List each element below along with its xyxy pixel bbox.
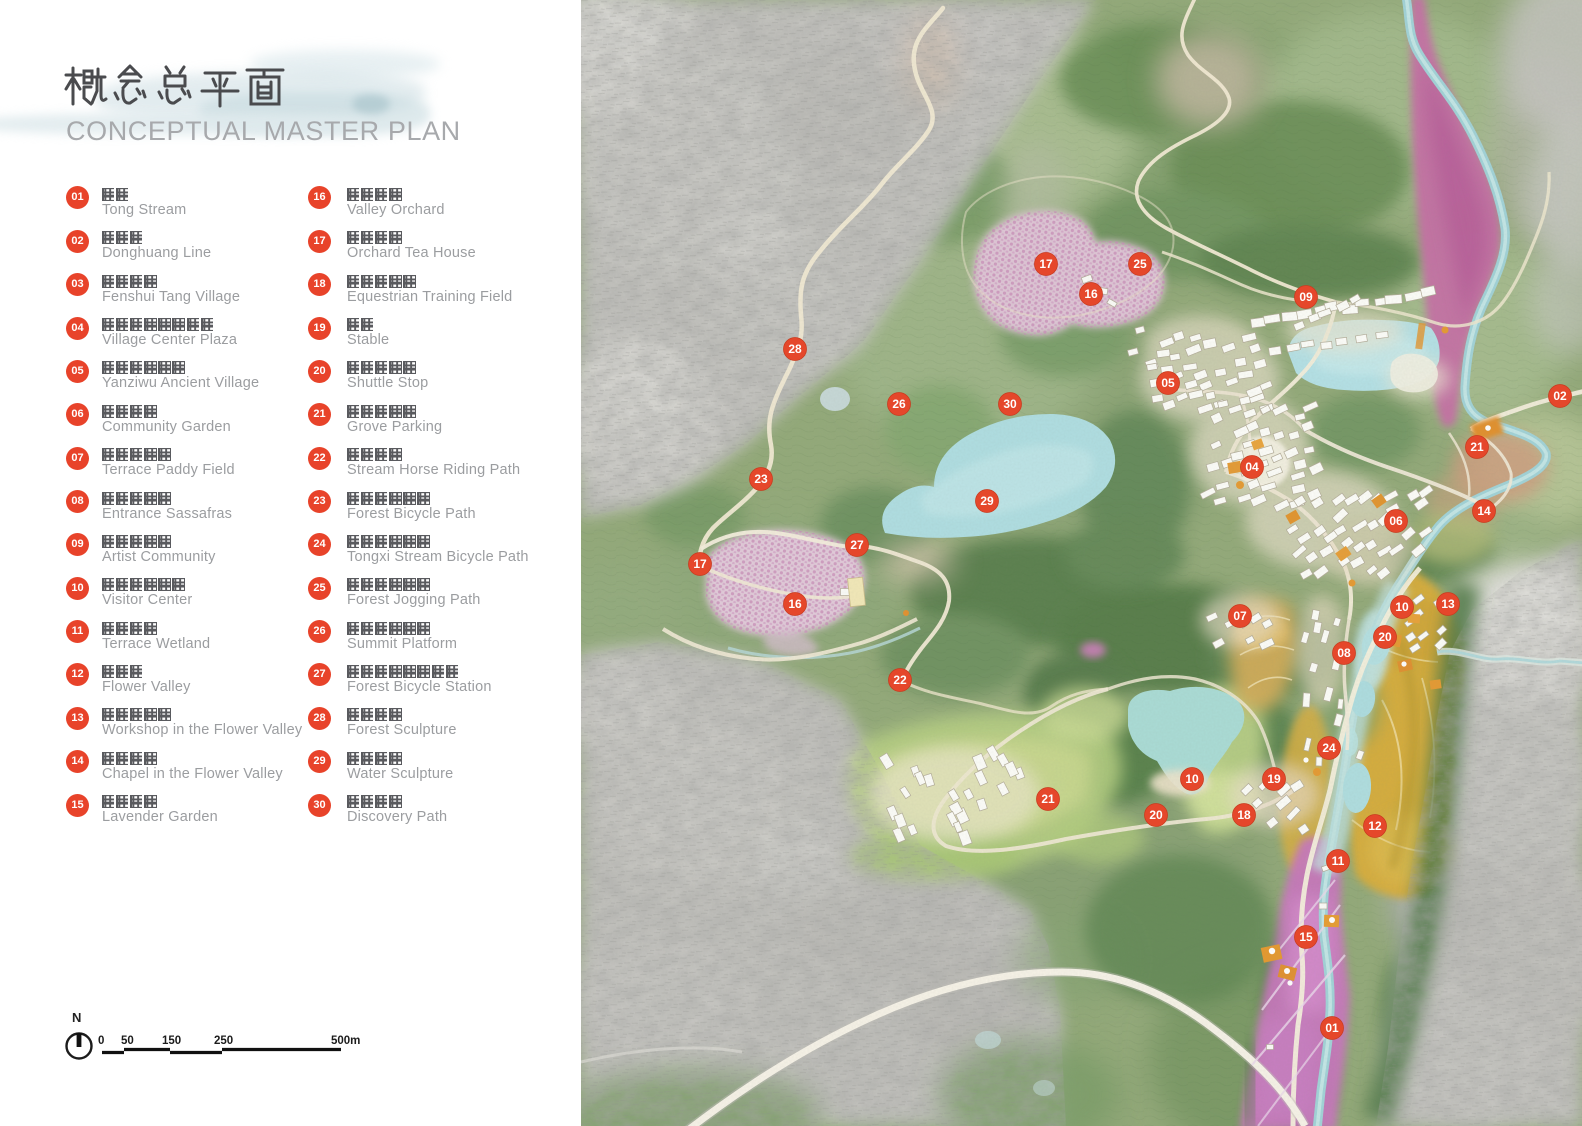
svg-text:05: 05 (1161, 376, 1175, 390)
svg-text:22: 22 (893, 673, 907, 687)
svg-text:13: 13 (1441, 597, 1455, 611)
svg-text:27: 27 (850, 538, 864, 552)
svg-text:16: 16 (1084, 287, 1098, 301)
svg-text:30: 30 (1003, 397, 1017, 411)
svg-text:500m: 500m (331, 1035, 360, 1047)
svg-text:20: 20 (1378, 630, 1392, 644)
svg-text:11: 11 (1332, 854, 1345, 868)
svg-text:09: 09 (1299, 290, 1313, 304)
svg-text:07: 07 (1233, 609, 1247, 623)
svg-text:26: 26 (892, 397, 906, 411)
svg-text:19: 19 (1267, 772, 1281, 786)
svg-text:28: 28 (788, 342, 802, 356)
svg-text:24: 24 (1322, 741, 1336, 755)
svg-text:10: 10 (1185, 772, 1199, 786)
svg-text:29: 29 (980, 494, 994, 508)
svg-text:18: 18 (1237, 808, 1251, 822)
svg-text:02: 02 (1553, 389, 1567, 403)
svg-text:50: 50 (121, 1035, 134, 1047)
svg-text:15: 15 (1299, 930, 1313, 944)
svg-text:150: 150 (162, 1035, 181, 1047)
svg-text:01: 01 (1325, 1021, 1339, 1035)
svg-text:16: 16 (788, 597, 802, 611)
svg-text:N: N (72, 1010, 81, 1025)
svg-text:06: 06 (1389, 514, 1403, 528)
svg-text:12: 12 (1368, 819, 1382, 833)
svg-text:17: 17 (1039, 257, 1053, 271)
svg-text:14: 14 (1477, 504, 1491, 518)
svg-text:17: 17 (693, 557, 707, 571)
svg-text:250: 250 (214, 1035, 233, 1047)
svg-text:20: 20 (1149, 808, 1163, 822)
svg-text:08: 08 (1337, 646, 1351, 660)
svg-text:21: 21 (1041, 792, 1055, 806)
svg-text:10: 10 (1395, 600, 1409, 614)
svg-text:23: 23 (754, 472, 768, 486)
svg-text:21: 21 (1470, 440, 1484, 454)
svg-text:0: 0 (98, 1035, 104, 1047)
svg-text:04: 04 (1245, 460, 1259, 474)
svg-text:25: 25 (1133, 257, 1147, 271)
